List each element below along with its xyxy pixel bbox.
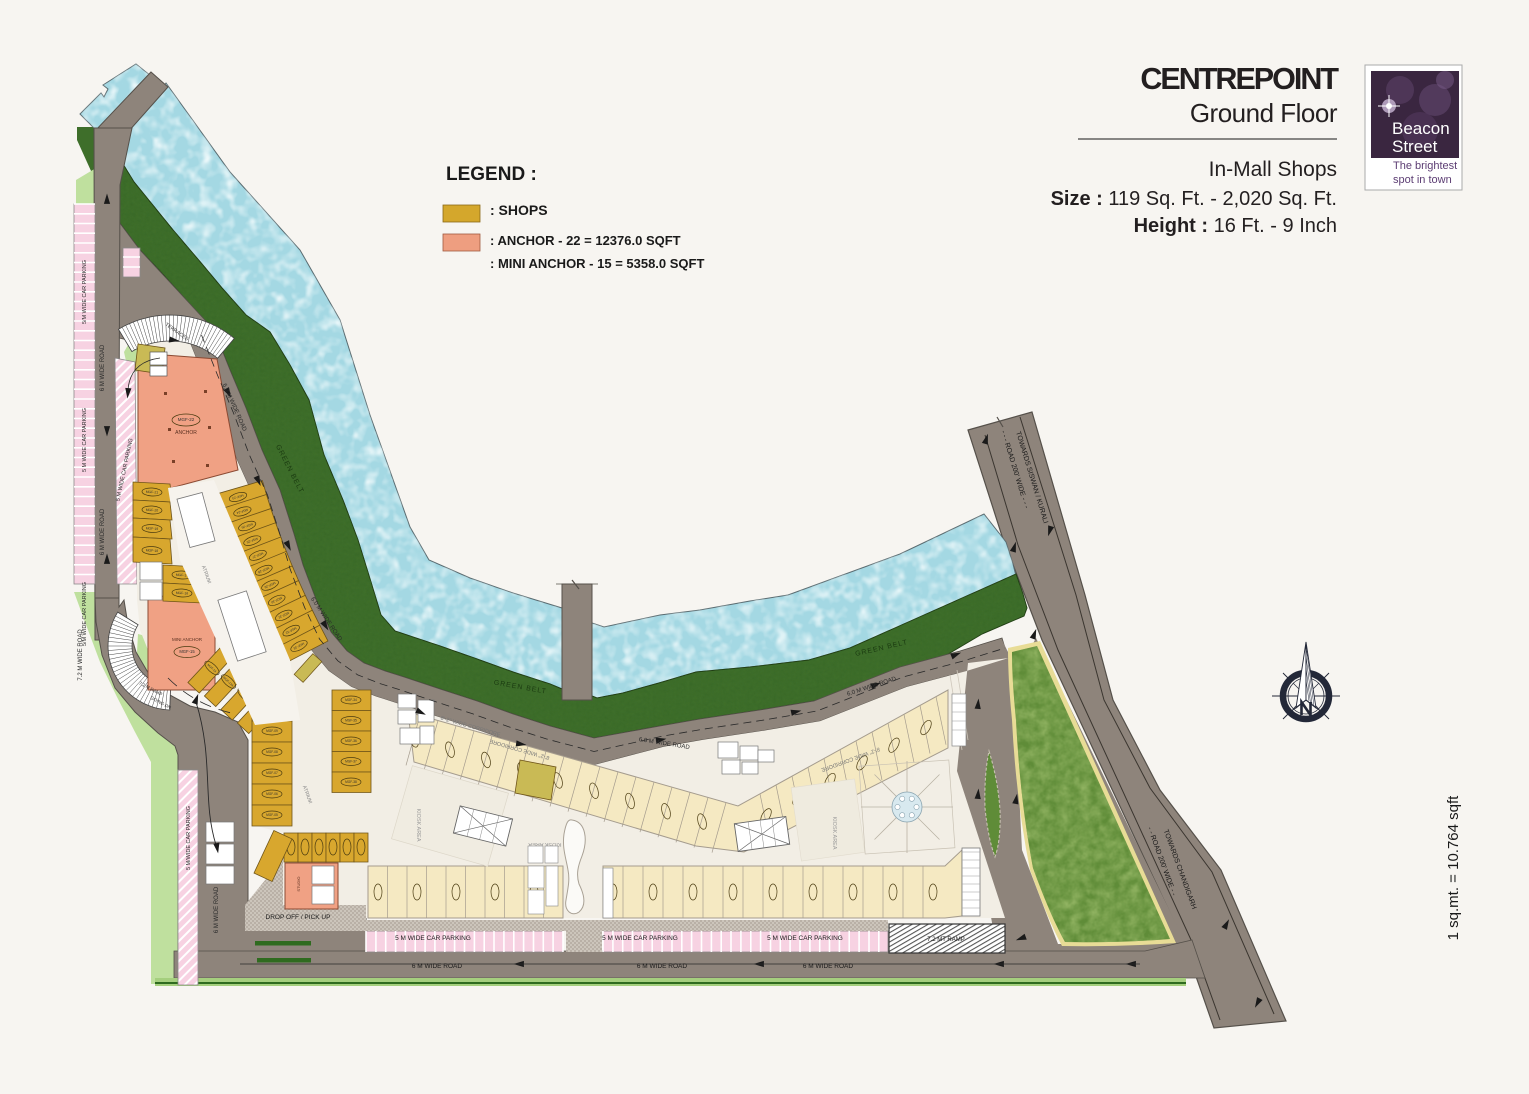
svg-text:5/M WIDE CAR PARKING: 5/M WIDE CAR PARKING <box>82 260 88 324</box>
svg-text:5 M WIDE CAR PARKING: 5 M WIDE CAR PARKING <box>82 408 88 472</box>
svg-text:CENTREPOINT: CENTREPOINT <box>1140 62 1339 96</box>
svg-text:MGF-34: MGF-34 <box>345 698 357 702</box>
svg-text:DROP OFF / PICK UP: DROP OFF / PICK UP <box>266 914 331 921</box>
svg-text:MGF-22: MGF-22 <box>178 417 195 422</box>
svg-text:Size : 119 Sq. Ft. - 2,020 Sq.: Size : 119 Sq. Ft. - 2,020 Sq. Ft. <box>1051 188 1337 210</box>
svg-text:spot in town: spot in town <box>1393 174 1452 186</box>
svg-text:ANCHOR: ANCHOR <box>175 430 197 436</box>
svg-text:Ground Floor: Ground Floor <box>1190 98 1338 128</box>
svg-text:MGF-35: MGF-35 <box>345 719 357 723</box>
svg-text:MGF-36: MGF-36 <box>345 739 357 743</box>
svg-text:6 M WIDE ROAD: 6 M WIDE ROAD <box>100 508 106 555</box>
svg-text:MGF-19: MGF-19 <box>146 526 159 531</box>
svg-text:STUDIO: STUDIO <box>296 876 301 891</box>
svg-text:The brightest: The brightest <box>1393 160 1457 172</box>
svg-text:MGF-05: MGF-05 <box>266 813 278 817</box>
svg-text:MGF-18: MGF-18 <box>146 548 159 553</box>
svg-text:MGF-07: MGF-07 <box>266 771 278 775</box>
svg-text:Street: Street <box>1392 137 1438 156</box>
svg-text:MGF-21: MGF-21 <box>146 490 159 495</box>
svg-text:6 M WIDE ROAD: 6 M WIDE ROAD <box>100 344 106 391</box>
svg-text:MINI ANCHOR: MINI ANCHOR <box>172 637 203 642</box>
svg-text:MGF-15: MGF-15 <box>179 649 195 654</box>
svg-text:5 M WIDE CAR PARKING: 5 M WIDE CAR PARKING <box>602 935 678 942</box>
svg-text:Beacon: Beacon <box>1392 119 1450 138</box>
svg-text:5 M WIDE CAR PARKING: 5 M WIDE CAR PARKING <box>395 935 471 942</box>
svg-text:MGF-16: MGF-16 <box>176 591 189 596</box>
svg-text:LEGEND :: LEGEND : <box>446 164 537 185</box>
svg-text:5/M WIDE CAR PARKING: 5/M WIDE CAR PARKING <box>82 582 88 646</box>
svg-text:MGF-08: MGF-08 <box>266 750 278 754</box>
svg-text:MGF-20: MGF-20 <box>146 508 159 513</box>
svg-text:: MINI ANCHOR - 15 = 5358.0 SQ: : MINI ANCHOR - 15 = 5358.0 SQFT <box>490 256 704 271</box>
svg-text:MGF-38: MGF-38 <box>345 780 357 784</box>
svg-text:Height : 16 Ft. - 9 Inch: Height : 16 Ft. - 9 Inch <box>1134 215 1337 237</box>
svg-text:6 M WIDE ROAD: 6 M WIDE ROAD <box>637 963 688 970</box>
svg-text:KIOSK AREA: KIOSK AREA <box>415 808 421 841</box>
svg-text:In-Mall Shops: In-Mall Shops <box>1209 158 1337 181</box>
svg-text:1 sq.mt. = 10.764 sqft: 1 sq.mt. = 10.764 sqft <box>1445 795 1462 941</box>
svg-text:: SHOPS: : SHOPS <box>490 202 548 218</box>
svg-text:6 M WIDE ROAD: 6 M WIDE ROAD <box>803 963 854 970</box>
svg-text:5 M/WIDE CAR PARKING: 5 M/WIDE CAR PARKING <box>186 806 192 870</box>
svg-text:MGF-09: MGF-09 <box>266 729 278 733</box>
svg-text:7.2 MT RAMP: 7.2 MT RAMP <box>927 937 965 943</box>
svg-text:6 M WIDE ROAD: 6 M WIDE ROAD <box>412 963 463 970</box>
svg-text:: ANCHOR - 22 = 12376.0 SQFT: : ANCHOR - 22 = 12376.0 SQFT <box>490 233 681 248</box>
svg-text:MGF-06: MGF-06 <box>266 792 278 796</box>
svg-text:MGF-37: MGF-37 <box>345 760 357 764</box>
svg-text:KIOSK AREA: KIOSK AREA <box>831 816 837 849</box>
svg-text:6 M WIDE ROAD: 6 M WIDE ROAD <box>214 886 220 933</box>
svg-text:5 M WIDE CAR PARKING: 5 M WIDE CAR PARKING <box>767 935 843 942</box>
